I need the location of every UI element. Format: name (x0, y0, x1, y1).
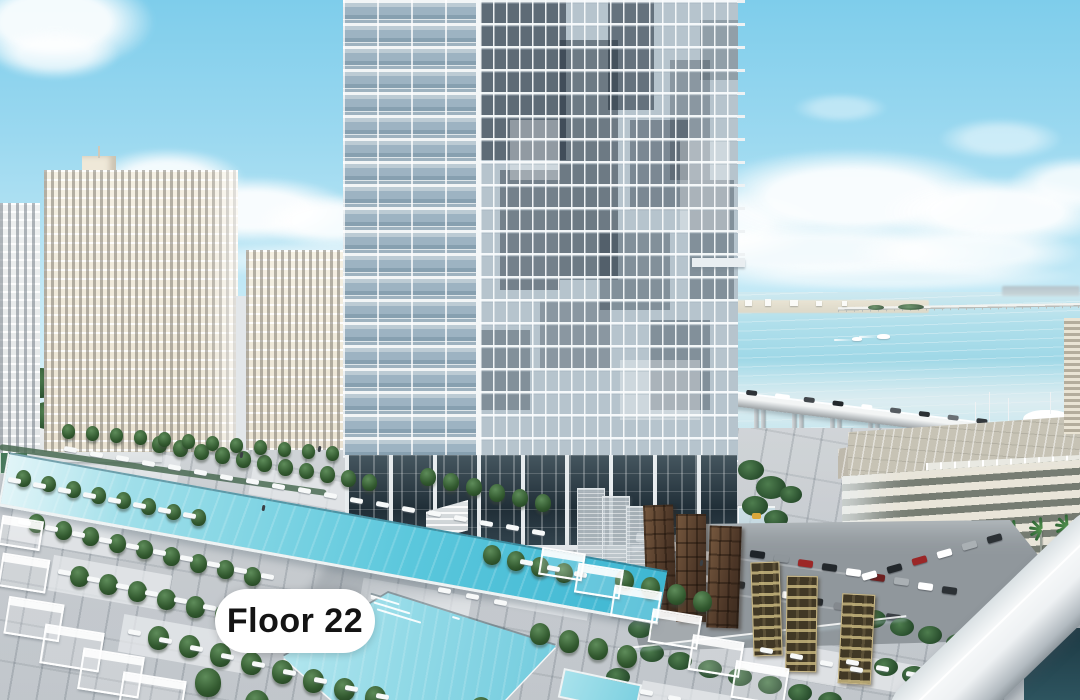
cloud (938, 118, 1063, 160)
deck-tree (278, 442, 291, 457)
deck-tree (182, 434, 195, 449)
deck-tree (443, 473, 459, 491)
deck-tree (302, 444, 315, 459)
deck-tree (320, 466, 335, 483)
bridge-car (746, 390, 758, 396)
deck-tree (362, 474, 377, 491)
islet-building (745, 300, 752, 306)
deck-tree (667, 584, 686, 605)
bridge-car (890, 407, 902, 413)
deck-tree (483, 545, 501, 565)
balcony-fins (737, 0, 745, 266)
curtain-wall-mullions (480, 0, 738, 462)
floor-badge: Floor 22 (215, 589, 375, 653)
cream-tower-b (246, 250, 346, 450)
deck-tree (230, 438, 243, 453)
deck-tree (163, 547, 180, 566)
distant-skyline (1002, 286, 1080, 296)
deck-tree (512, 489, 528, 507)
deck-tree (278, 459, 293, 476)
cream-tower-a (44, 170, 238, 452)
bridge-car (861, 404, 873, 410)
deck-tree (530, 623, 550, 645)
islet-trees (898, 304, 924, 310)
bridge-car (775, 393, 790, 400)
deck-tree (206, 436, 219, 451)
excavator (752, 513, 761, 519)
islet-building (790, 300, 798, 306)
deck-tree (299, 463, 314, 480)
glass-tower-balcony-face (343, 0, 480, 458)
cabana (0, 515, 44, 551)
tower-a-antenna (98, 146, 100, 158)
deck-tree (195, 668, 221, 697)
boat-mast (1050, 392, 1051, 414)
deck-tree (254, 440, 267, 455)
privacy-screen-bronze (706, 525, 742, 628)
boat-wake (859, 336, 879, 338)
islet-building (765, 299, 771, 306)
deck-tree (134, 430, 147, 445)
deck-tree (86, 426, 99, 441)
deck-tree (257, 455, 272, 472)
balcony-view-photo: Floor 22 (0, 0, 1080, 700)
deck-tree (110, 428, 123, 443)
deck-tree (588, 638, 608, 660)
beige-tower-right-edge (1064, 318, 1080, 434)
deck-tree (109, 534, 126, 553)
deck-tree (62, 424, 75, 439)
shore-trees (738, 460, 764, 480)
deck-tree (215, 447, 230, 464)
deck-tree (489, 484, 505, 502)
deck-tree (341, 470, 356, 487)
boat-wake (834, 339, 854, 341)
white-tower-left-edge (0, 203, 40, 453)
deck-tree (236, 451, 251, 468)
deck-tree (466, 478, 482, 496)
deck-tree (326, 446, 339, 461)
cloud (793, 93, 888, 123)
deck-tree (420, 468, 436, 486)
palm-frond (1038, 517, 1042, 529)
deck-tree (136, 540, 153, 559)
shrub (918, 626, 942, 644)
bridge-car (919, 411, 931, 417)
islet-trees (868, 305, 884, 310)
glass-tower-curtain-wall (480, 0, 738, 462)
parked-car (750, 550, 766, 559)
floor-badge-label: Floor 22 (227, 602, 363, 641)
islet-building (816, 301, 822, 306)
shrub (788, 684, 812, 700)
deck-tree (70, 566, 89, 587)
deck-tree (559, 630, 579, 652)
tower-setback-ledge (692, 258, 745, 267)
portrait-screen-gold (750, 562, 782, 657)
deck-tree (693, 591, 712, 612)
islet-building (842, 301, 847, 306)
shrub (890, 618, 914, 636)
bridge-car (832, 400, 844, 406)
bridge-car (947, 414, 959, 420)
deck-tree (158, 432, 171, 447)
cabana (0, 552, 50, 593)
boat-mast (989, 392, 990, 426)
bridge-car (803, 397, 815, 403)
shore-trees (780, 486, 802, 503)
deck-tree (617, 645, 637, 667)
deck-tree (535, 494, 551, 512)
